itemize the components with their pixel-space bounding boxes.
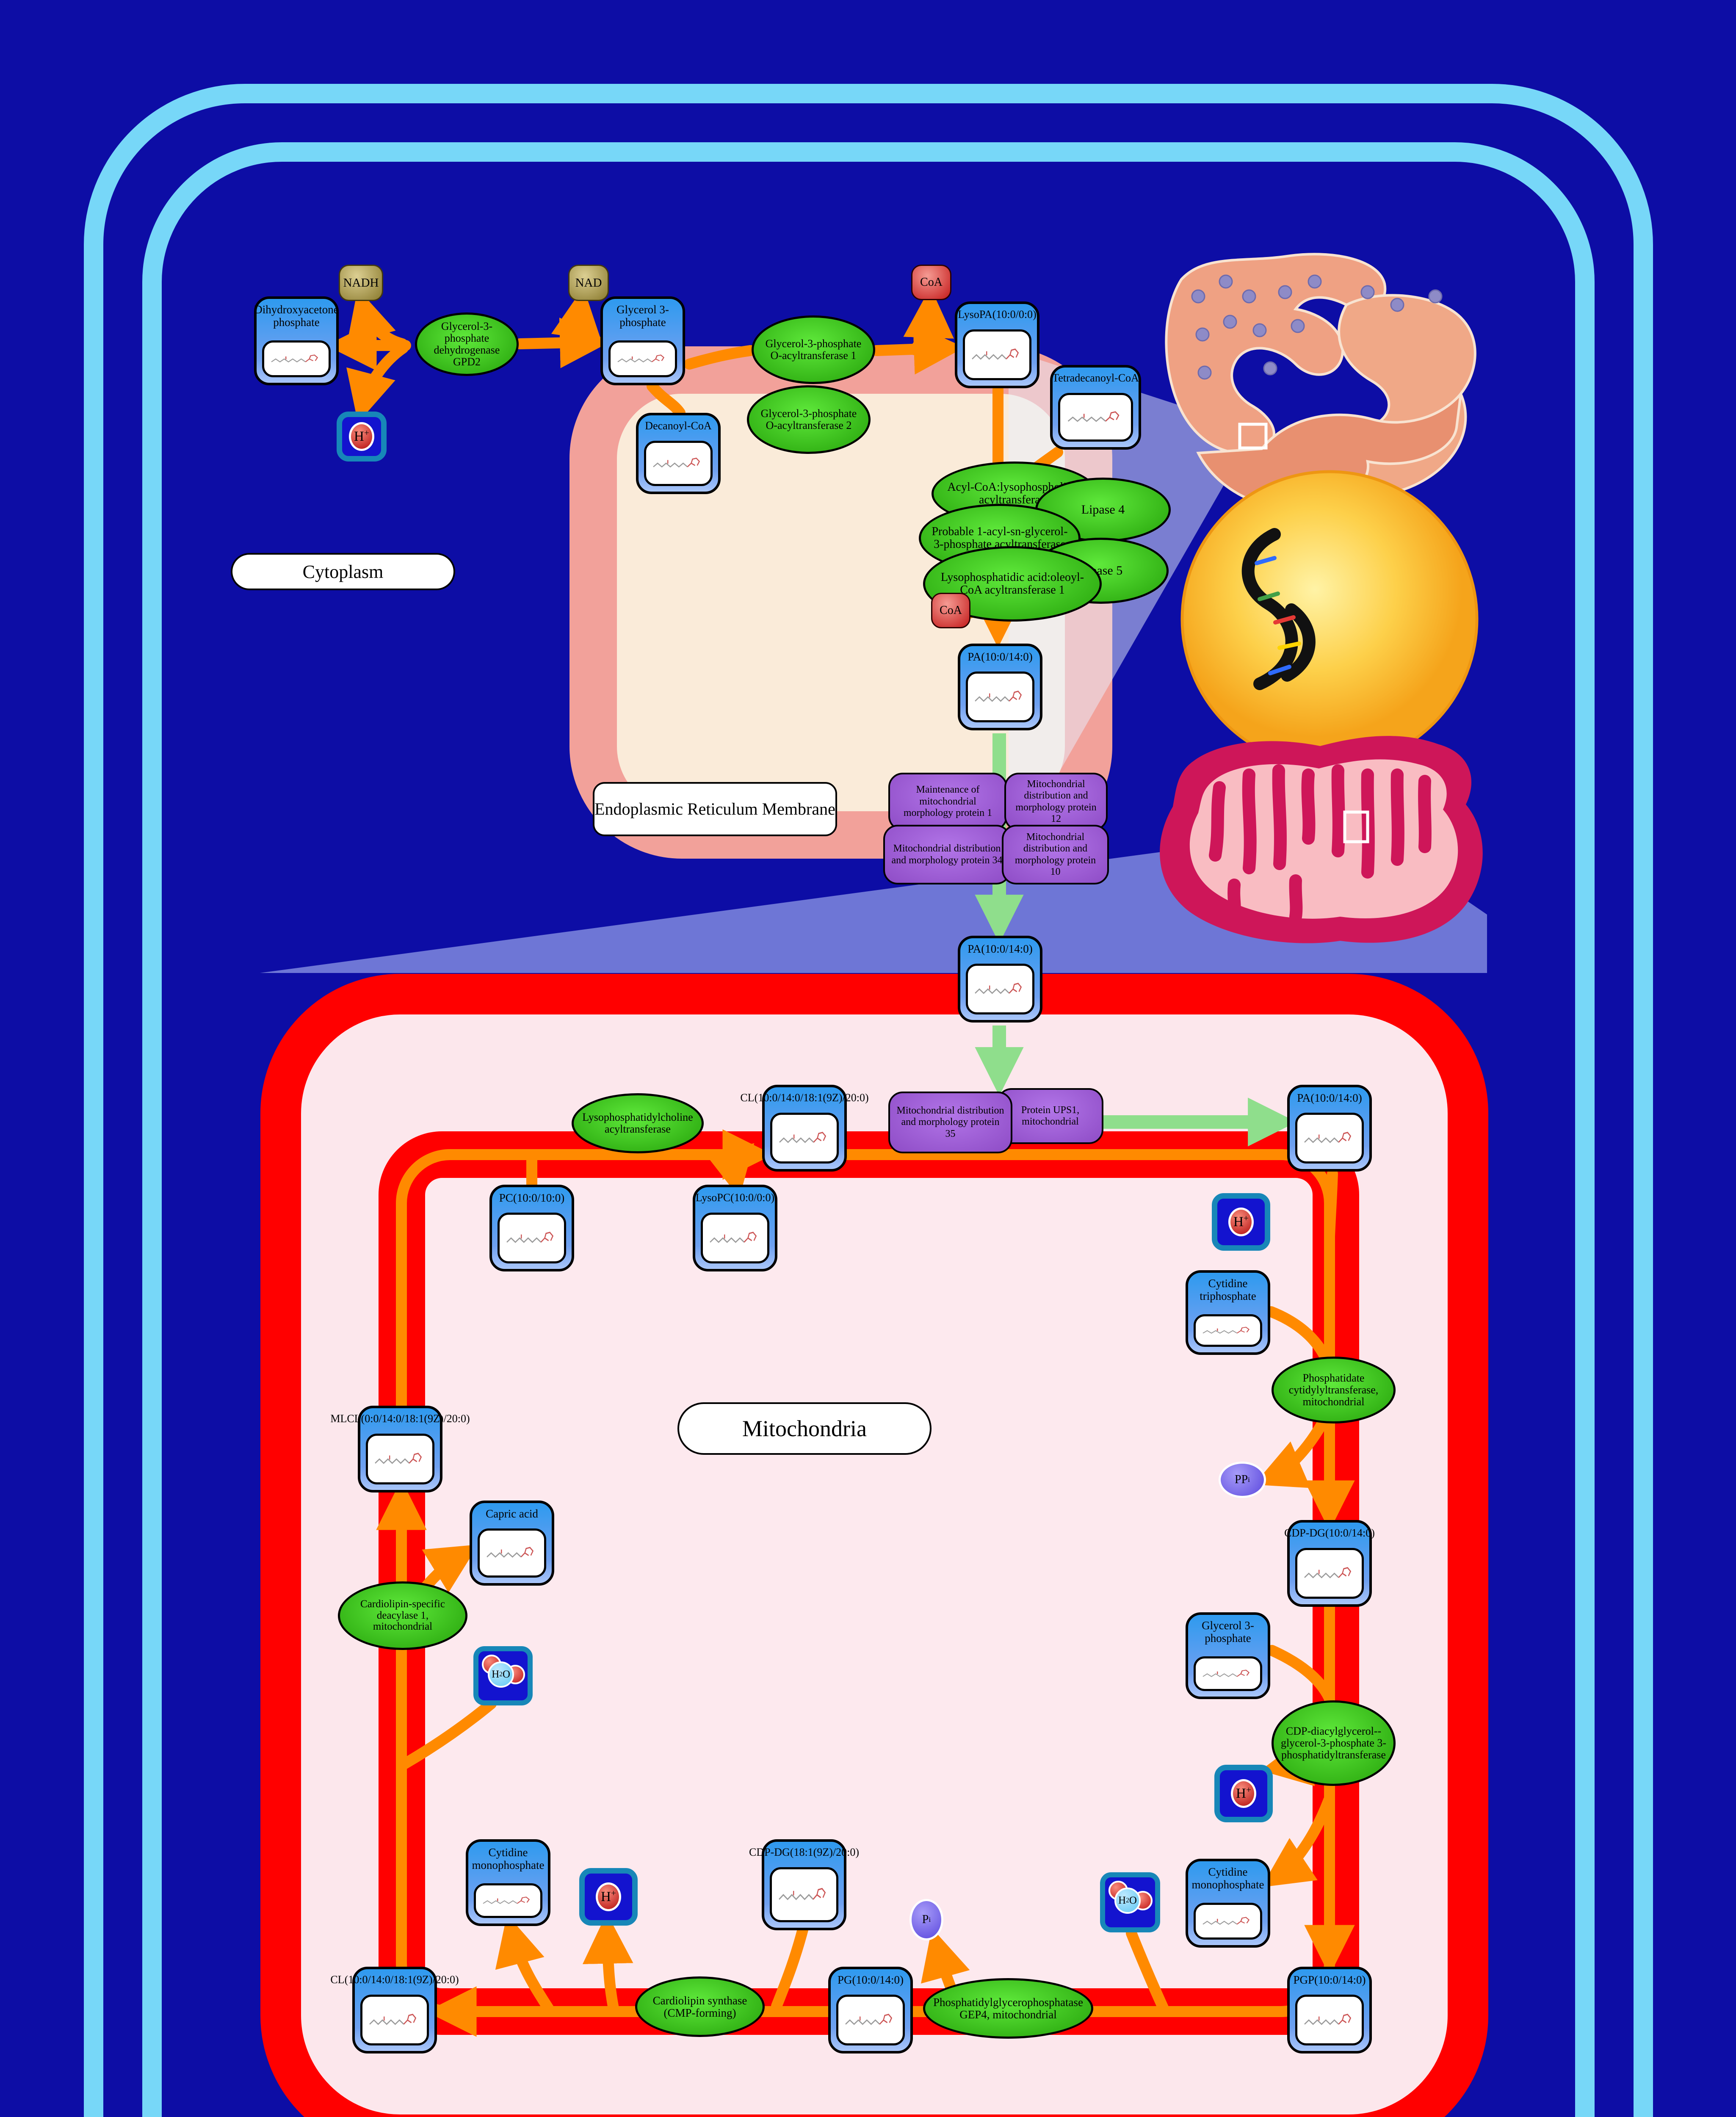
metabolite-cl-top[interactable]: CL(10:0/14:0/18:1(9Z)/20:0) [762, 1085, 847, 1172]
metabolite-lysopa[interactable]: LysoPA(10:0/0:0) [955, 301, 1039, 388]
structure-thumbnail [770, 1113, 839, 1164]
enzyme-cardiolipin-synthase[interactable]: Cardiolipin synthase (CMP-forming) [635, 1976, 765, 2037]
cofactor-coa-top[interactable]: CoA [911, 265, 951, 300]
metabolite-capric-acid[interactable]: Capric acid [470, 1501, 554, 1586]
metabolite-cl-bottom[interactable]: CL(10:0/14:0/18:1(9Z)/20:0) [352, 1967, 437, 2053]
mitochondrion-illustration [1160, 736, 1483, 943]
structure-thumbnail [770, 1867, 838, 1922]
structure-thumbnail [1295, 1113, 1364, 1164]
cofactor-ppi[interactable]: PPi [1219, 1462, 1266, 1498]
mitochondria-label: Mitochondria [677, 1402, 932, 1455]
structure-thumbnail [1058, 393, 1133, 442]
structure-thumbnail [1194, 1314, 1262, 1347]
metabolite-cdp-dg-18-20[interactable]: CDP-DG(18:1(9Z)/20:0) [762, 1839, 846, 1930]
structure-thumbnail [966, 964, 1034, 1014]
metabolite-ctp[interactable]: Cytidine triphosphate [1186, 1270, 1270, 1355]
metabolite-pa-er[interactable]: PA(10:0/14:0) [958, 644, 1042, 730]
enzyme-gpat2[interactable]: Glycerol-3-phosphate O-acyltransferase 2 [747, 385, 871, 454]
enzyme-pgp-synthase[interactable]: CDP-diacylglycerol--glycerol-3-phosphate… [1272, 1700, 1396, 1786]
metabolite-cmp-left[interactable]: Cytidine monophosphate [466, 1839, 550, 1926]
hydrogen-ion-icon[interactable]: H+ [337, 412, 387, 462]
structure-thumbnail [1194, 1903, 1262, 1940]
protein-mdm34[interactable]: Mitochondrial distribution and morpholog… [883, 825, 1011, 884]
protein-ups1[interactable]: Protein UPS1, mitochondrial [997, 1088, 1103, 1144]
structure-thumbnail [1295, 1548, 1364, 1599]
metabolite-decanoyl-coa[interactable]: Decanoyl-CoA [636, 413, 721, 494]
metabolite-g3p-cytoplasm[interactable]: Glycerol 3-phosphate [600, 296, 685, 385]
protein-mdm10[interactable]: Mitochondrial distribution and morpholog… [1002, 825, 1109, 884]
enzyme-gpat1[interactable]: Glycerol-3-phosphate O-acyltransferase 1 [752, 315, 875, 384]
structure-thumbnail [644, 441, 713, 486]
structure-thumbnail [498, 1213, 566, 1263]
enzyme-gpd2[interactable]: Glycerol-3-phosphate dehydrogenase GPD2 [415, 312, 519, 376]
structure-thumbnail [963, 329, 1031, 380]
cofactor-nad[interactable]: NAD [568, 265, 609, 301]
structure-thumbnail [366, 1434, 434, 1484]
cofactor-nadh[interactable]: NADH [339, 265, 383, 301]
hydrogen-ion-icon[interactable]: H+ [1212, 1193, 1270, 1251]
protein-mdm12[interactable]: Mitochondrial distribution and morpholog… [1004, 773, 1108, 831]
enzyme-gep4[interactable]: Phosphatidylglycerophosphatase GEP4, mit… [923, 1978, 1093, 2039]
structure-thumbnail [608, 340, 677, 377]
structure-thumbnail [966, 672, 1034, 722]
metabolite-tetradecanoyl-coa[interactable]: Tetradecanoyl-CoA [1050, 365, 1141, 450]
protein-mmm1[interactable]: Maintenance of mitochondrial morphology … [888, 773, 1007, 831]
water-molecule-icon[interactable]: H2O [1100, 1872, 1160, 1932]
nucleus-illustration [1182, 472, 1477, 766]
structure-thumbnail [836, 1995, 905, 2045]
structure-thumbnail [474, 1883, 542, 1918]
metabolite-mlcl[interactable]: MLCL(0:0/14:0/18:1(9Z)/20:0) [358, 1406, 442, 1492]
metabolite-cdp-dg-10-14[interactable]: CDP-DG(10:0/14:0) [1287, 1520, 1372, 1607]
water-molecule-icon[interactable]: H2O [473, 1646, 533, 1705]
structure-thumbnail [1194, 1656, 1262, 1691]
metabolite-dhap[interactable]: Dihydroxyacetone phosphate [254, 296, 339, 385]
metabolite-pc[interactable]: PC(10:0/10:0) [489, 1185, 574, 1271]
metabolite-pa-intermembrane[interactable]: PA(10:0/14:0) [958, 936, 1042, 1023]
cofactor-pi[interactable]: Pi [909, 1899, 943, 1940]
cytoplasm-label: Cytoplasm [231, 553, 455, 590]
hydrogen-ion-icon[interactable]: H+ [1214, 1765, 1273, 1822]
metabolite-g3p-mito[interactable]: Glycerol 3-phosphate [1186, 1612, 1270, 1699]
structure-thumbnail [478, 1528, 546, 1578]
enzyme-lpcat[interactable]: Lysophosphatidylcholine acyltransferase [572, 1093, 704, 1153]
structure-thumbnail [1295, 1995, 1364, 2045]
er-organelle-illustration [1166, 254, 1475, 509]
structure-thumbnail [262, 340, 331, 377]
enzyme-phosphatidate-cytidylyltransferase[interactable]: Phosphatidate cytidylyltransferase, mito… [1272, 1357, 1396, 1423]
er-membrane-label: Endoplasmic Reticulum Membrane [593, 782, 837, 836]
structure-thumbnail [360, 1995, 429, 2045]
protein-mdm35[interactable]: Mitochondrial distribution and morpholog… [888, 1092, 1012, 1153]
metabolite-lysopc[interactable]: LysoPC(10:0/0:0) [693, 1185, 777, 1271]
hydrogen-ion-icon[interactable]: H+ [579, 1868, 638, 1926]
metabolite-pgp[interactable]: PGP(10:0/14:0) [1287, 1967, 1372, 2053]
cofactor-coa-mid[interactable]: CoA [931, 593, 970, 628]
structure-thumbnail [701, 1213, 769, 1263]
metabolite-cmp-right[interactable]: Cytidine monophosphate [1186, 1859, 1270, 1948]
enzyme-cld1[interactable]: Cardiolipin-specific deacylase 1, mitoch… [338, 1581, 467, 1650]
metabolite-pg[interactable]: PG(10:0/14:0) [828, 1967, 913, 2053]
metabolite-pa-mito[interactable]: PA(10:0/14:0) [1287, 1085, 1372, 1172]
